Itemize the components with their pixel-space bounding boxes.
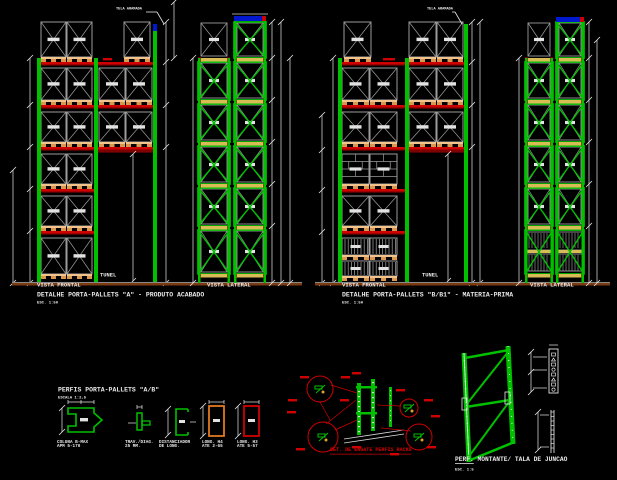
lateral-module: [201, 23, 227, 56]
profile-label-distanciador: DISTANCIADORDE LONG.: [159, 440, 190, 449]
bag-stack: [342, 154, 369, 184]
lateral-pallet-bar: [556, 184, 584, 189]
groupB-lateral-caption: VISTA LATERAL: [530, 283, 574, 289]
pallet: [342, 255, 369, 260]
profile-label-trav-diag: TRAV./DIAG.25 MM.: [125, 440, 154, 449]
lateral-module: [528, 23, 550, 56]
pallet: [126, 100, 152, 105]
rack-column: [551, 58, 554, 283]
red-note-mark: [296, 448, 305, 450]
rack-column: [464, 24, 468, 284]
red-note-mark: [340, 399, 349, 401]
pallet-box: [41, 68, 66, 100]
lateral-module: [556, 146, 584, 184]
pallet-box: [342, 196, 369, 226]
lateral-pallet-bar: [234, 274, 266, 279]
groupB-frontal-caption: VISTA FRONTAL: [342, 283, 386, 289]
pallet-box: [67, 112, 92, 142]
lateral-module: [198, 188, 230, 226]
rack-column: [234, 20, 237, 283]
pallet: [370, 100, 397, 105]
pallet: [342, 226, 369, 231]
groupB-mesh-note: TELA ARAMADA: [427, 7, 453, 11]
pallet: [41, 184, 66, 189]
lateral-pallet-bar: [556, 142, 584, 147]
pallet-box: [67, 196, 92, 226]
montante-caption-rest: MONTANTE/ TALA DE JUNCAO: [474, 456, 568, 463]
montante-caption: PERF. MONTANTE/ TALA DE JUNCAO: [455, 457, 567, 464]
red-note-mark: [427, 446, 436, 448]
cad-canvas: [0, 0, 617, 480]
pallet-box: [342, 112, 369, 142]
groupA-lateral-view: [190, 14, 293, 286]
pallet: [370, 184, 397, 189]
lateral-module: [198, 104, 230, 142]
rack-column: [405, 58, 409, 284]
lateral-module: [234, 188, 266, 226]
pallet: [67, 184, 92, 189]
groupB-tunnel-label: TUNEL: [422, 273, 438, 279]
drum-row: [342, 261, 369, 276]
pallet: [342, 100, 369, 105]
lateral-module: [198, 230, 230, 274]
montante-detail: [462, 345, 558, 462]
rack-column: [228, 58, 231, 283]
lateral-module: [556, 62, 584, 100]
dimension-line: [278, 19, 284, 286]
lateral-pallet-bar: [198, 58, 230, 63]
lateral-module: [556, 230, 584, 274]
lateral-module: [198, 146, 230, 184]
rack-beam: [40, 189, 95, 193]
dimension-line: [469, 19, 475, 286]
pallet-box: [344, 22, 371, 57]
pallet-box: [126, 112, 152, 142]
dimension-line: [165, 406, 171, 438]
pallet: [99, 142, 125, 147]
lateral-pallet-bar: [198, 274, 230, 279]
dimension-line: [445, 151, 451, 284]
dimension-line: [586, 19, 592, 286]
rack-beam: [340, 105, 468, 109]
pallet-box: [437, 112, 463, 142]
pallet-box: [41, 22, 66, 57]
pallet: [344, 57, 371, 62]
pallet: [41, 226, 66, 231]
dimension-line: [10, 167, 16, 286]
pallet-box: [41, 112, 66, 142]
dimension-line: [190, 55, 196, 286]
dimension-line: [535, 409, 541, 453]
pallet: [67, 274, 92, 279]
pallet: [124, 57, 150, 62]
lateral-module: [556, 22, 584, 58]
groupA-tunnel-label: TUNEL: [100, 273, 116, 279]
pallet: [437, 57, 463, 62]
pallet-box: [126, 68, 152, 100]
pallet: [437, 100, 463, 105]
pallet-box: [67, 154, 92, 184]
pallet-box: [409, 22, 436, 57]
profile-label-long-h3: LONG. H3ATE 5-57: [237, 440, 258, 449]
lateral-module: [234, 230, 266, 274]
lateral-pallet-bar: [234, 58, 266, 63]
lateral-pallet-bar: [198, 226, 230, 231]
lateral-pallet-bar: [234, 184, 266, 189]
profiles-legend: [59, 400, 259, 439]
pallet-box: [409, 68, 436, 100]
pallet: [41, 57, 66, 62]
lateral-module: [525, 62, 553, 100]
pallet: [126, 142, 152, 147]
rack-beam: [340, 231, 407, 235]
red-note-mark: [287, 411, 296, 413]
pallet: [41, 274, 66, 279]
pallet-box: [99, 68, 125, 100]
rack-beam: [40, 62, 157, 66]
lateral-pallet-bar: [234, 142, 266, 147]
rack-column: [264, 20, 267, 283]
cad-drawing-stage: VISTA FRONTAL VISTA LATERAL DETALHE PORT…: [0, 0, 617, 480]
pallet: [41, 142, 66, 147]
red-note-mark: [300, 376, 309, 378]
pallet: [67, 100, 92, 105]
pallet-box: [437, 68, 463, 100]
pallet: [370, 255, 397, 260]
profile-label-line2: APM 5-170: [57, 445, 88, 450]
pallet-box: [41, 238, 66, 274]
dimension-line: [163, 19, 169, 286]
lateral-pallet-bar: [525, 226, 553, 231]
dimension-line: [171, 0, 177, 61]
lateral-pallet-bar: [556, 226, 584, 231]
dimension-line: [59, 405, 65, 435]
lateral-module: [234, 22, 266, 58]
lateral-pallet-bar: [525, 274, 553, 279]
red-note-mark: [103, 58, 112, 60]
pallet: [67, 142, 92, 147]
red-note-mark: [288, 399, 297, 401]
lateral-pallet-bar: [234, 226, 266, 231]
pallet-box: [67, 238, 92, 274]
lateral-pallet-bar: [556, 100, 584, 105]
pallet: [409, 100, 436, 105]
assembly-caption: DET. DE ENGATE PERFIS RACKS: [330, 448, 412, 455]
rack-column: [94, 58, 98, 284]
pallet: [370, 142, 397, 147]
lateral-module: [234, 104, 266, 142]
lateral-pallet-bar: [525, 100, 553, 105]
profile-label-line2: ATE 2-65: [202, 445, 223, 450]
lateral-pallet-bar: [234, 100, 266, 105]
pallet: [370, 276, 397, 281]
red-note-mark: [424, 399, 433, 401]
pallet: [67, 226, 92, 231]
red-note-mark: [431, 415, 440, 417]
pallet-box: [124, 22, 150, 57]
pallet-box: [370, 68, 397, 100]
groupA-scale: ESC. 1:50: [37, 301, 58, 305]
drum-row: [342, 238, 369, 255]
groupB-detail-title: DETALHE PORTA-PALLETS "B/B1" - MATERIA-P…: [342, 292, 513, 299]
profiles-scale: ESCALA 1:2,5: [58, 396, 86, 400]
rack-beam: [40, 231, 95, 235]
rack-column: [525, 58, 528, 283]
lateral-pallet-bar: [556, 58, 584, 63]
pallet-box: [99, 112, 125, 142]
drum-row: [370, 261, 397, 276]
pallet: [409, 57, 436, 62]
groupB-scale: ESC. 1:50: [342, 301, 363, 305]
montante-scale: ESC. 1:5: [455, 468, 474, 472]
dimension-line: [287, 55, 293, 286]
dimension-line: [516, 55, 522, 286]
pallet: [370, 226, 397, 231]
dimension-line: [130, 151, 136, 284]
dimension-line: [27, 55, 33, 286]
lateral-module: [525, 188, 553, 226]
groupA-frontal-caption: VISTA FRONTAL: [37, 283, 81, 289]
groupA-mesh-note: TELA ARAMADA: [116, 7, 142, 11]
lateral-module: [525, 146, 553, 184]
red-note-mark: [383, 58, 395, 60]
groupA-detail-title: DETALHE PORTA-PALLETS "A" - PRODUTO ACAB…: [37, 292, 204, 299]
lateral-pallet-bar: [525, 184, 553, 189]
pallet: [342, 276, 369, 281]
dimension-line: [235, 403, 241, 439]
lateral-module: [525, 230, 553, 274]
pallet-box: [67, 22, 92, 57]
bag-stack: [370, 154, 397, 184]
lateral-pallet-bar: [525, 58, 553, 63]
profile-label-long-h4: LONG. H4ATE 2-65: [202, 440, 223, 449]
rack-beam: [40, 105, 157, 109]
lateral-pallet-bar: [525, 142, 553, 147]
pallet: [409, 142, 436, 147]
drum-row: [370, 238, 397, 255]
dimension-line: [269, 19, 275, 286]
dimension-line: [330, 55, 336, 286]
rack-column: [198, 58, 201, 283]
rack-beam: [340, 189, 407, 193]
lateral-module: [556, 104, 584, 142]
pallet-box: [370, 112, 397, 142]
lateral-module: [556, 188, 584, 226]
red-note-mark: [341, 376, 350, 378]
red-note-mark: [352, 372, 361, 374]
pallet-box: [370, 196, 397, 226]
red-note-mark: [396, 389, 405, 391]
montante-caption-prefix: PERF.: [455, 456, 474, 464]
dimension-line: [477, 19, 483, 286]
pallet-box: [41, 196, 66, 226]
pallet: [342, 184, 369, 189]
profile-label-line2: ATE 5-57: [237, 445, 258, 450]
pallet-box: [437, 22, 463, 57]
profile-label-line2: 25 MM.: [125, 445, 154, 450]
lateral-module: [234, 62, 266, 100]
groupA-lateral-caption: VISTA LATERAL: [207, 283, 251, 289]
pallet-box: [342, 68, 369, 100]
pallet-box: [409, 112, 436, 142]
lateral-module: [198, 62, 230, 100]
rack-beam: [340, 62, 468, 66]
lateral-module: [234, 146, 266, 184]
lateral-module: [525, 104, 553, 142]
dimension-line: [319, 112, 325, 286]
pallet: [67, 57, 92, 62]
pallet-box: [67, 68, 92, 100]
profile-label-coluna: COLUNA B-MAXAPM 5-170: [57, 440, 88, 449]
dimension-line: [594, 37, 600, 286]
profile-label-line2: DE LONG.: [159, 445, 190, 450]
lateral-pallet-bar: [198, 142, 230, 147]
profiles-title: PERFIS PORTA-PALLETS "A/B": [58, 387, 159, 394]
pallet: [342, 142, 369, 147]
pallet: [437, 142, 463, 147]
dimension-line: [200, 403, 206, 439]
lateral-pallet-bar: [198, 184, 230, 189]
assembly-detail: [287, 372, 440, 455]
lateral-pallet-bar: [556, 274, 584, 279]
rack-column: [582, 21, 585, 283]
rack-column: [37, 58, 41, 284]
rack-column: [338, 58, 342, 284]
pallet: [99, 100, 125, 105]
rack-column: [153, 31, 157, 284]
rack-column: [556, 21, 559, 283]
lateral-pallet-bar: [198, 100, 230, 105]
pallet: [41, 100, 66, 105]
groupB-lateral-view: [516, 17, 600, 286]
pallet-box: [41, 154, 66, 184]
